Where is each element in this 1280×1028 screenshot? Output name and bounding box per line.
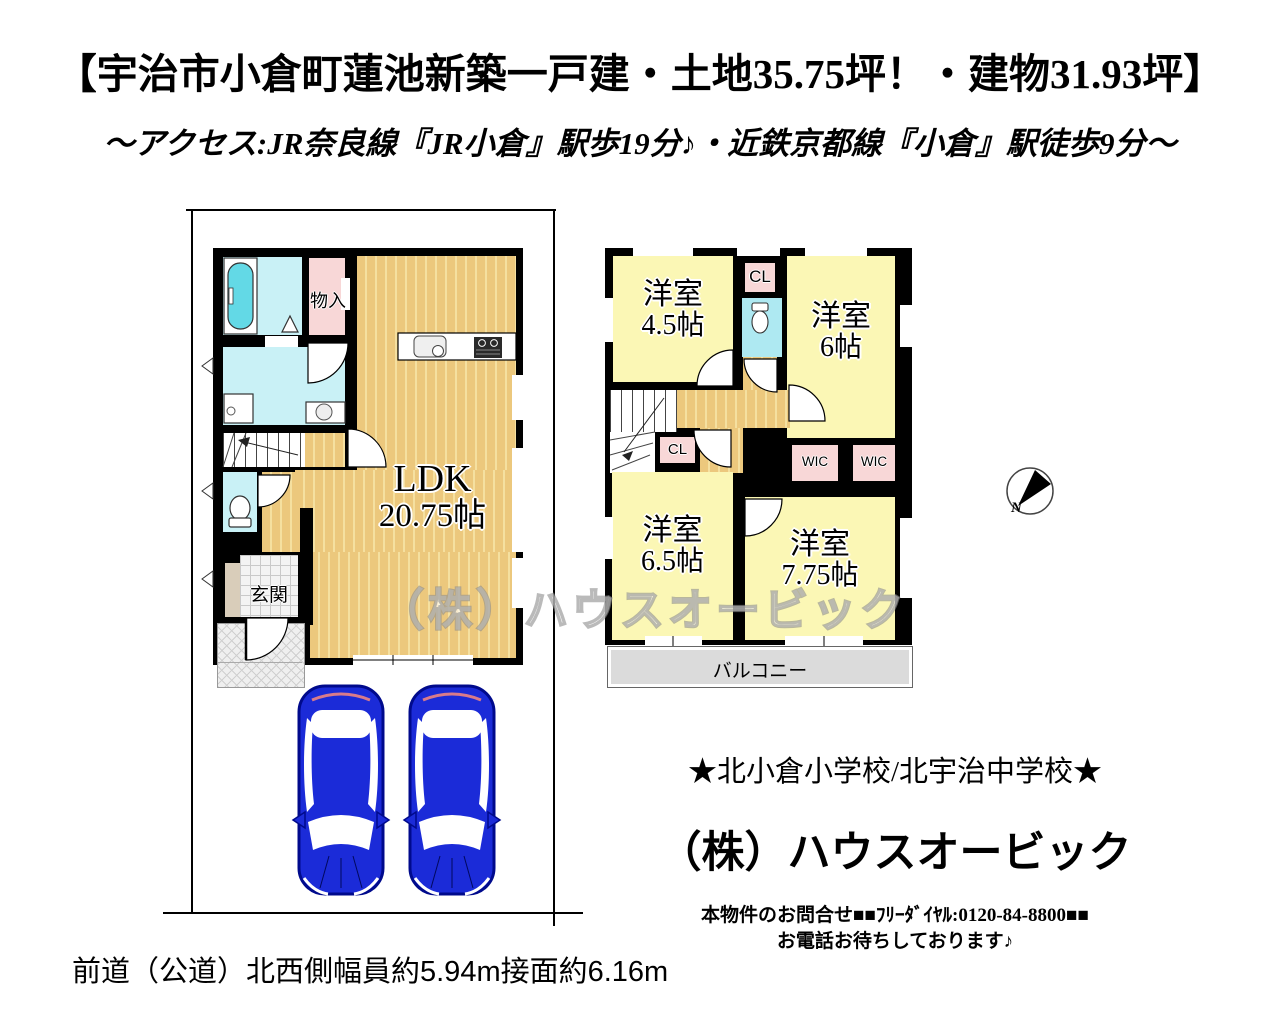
hall-2f-b bbox=[743, 357, 777, 390]
compass-north-label: N bbox=[1010, 500, 1023, 516]
ldk-size: 20.75帖 bbox=[330, 500, 535, 533]
wic-left-label: WIC bbox=[792, 454, 838, 469]
closet-top-label: CL bbox=[745, 267, 775, 287]
window-kitchen-east bbox=[512, 375, 523, 420]
window-2f-north2 bbox=[737, 248, 780, 256]
ldk-label: LDK 20.75帖 bbox=[330, 460, 535, 533]
bedroom-6-5-label: 洋室 6.5帖 bbox=[612, 514, 733, 578]
bedroom-6-5-name: 洋室 bbox=[612, 514, 733, 547]
bedroom-4-5-name: 洋室 bbox=[613, 278, 733, 311]
road-info: 前道（公道）北西側幅員約5.94m接面約6.16m bbox=[72, 948, 668, 990]
toilet-room-2f bbox=[742, 298, 782, 357]
bedroom-4-5-label: 洋室 4.5帖 bbox=[613, 278, 733, 342]
porch-step-line bbox=[218, 662, 302, 663]
bedroom-4-5-size: 4.5帖 bbox=[613, 311, 733, 342]
access-info: ～アクセス:JR奈良線『JR小倉』駅歩19分♪・近鉄京都線『小倉』駅徒歩9分～ bbox=[0, 118, 1280, 163]
bedroom-6-size: 6帖 bbox=[787, 333, 895, 364]
ldk-floor-upper bbox=[357, 256, 516, 470]
wic-right-label: WIC bbox=[853, 454, 895, 469]
watermark: （株）ハウスオービック bbox=[380, 574, 900, 638]
hall-2f-c bbox=[700, 428, 743, 473]
window-2f-north1 bbox=[633, 248, 693, 256]
compass-icon: N bbox=[1007, 468, 1053, 516]
bedroom-7-75-name: 洋室 bbox=[745, 528, 895, 561]
bedroom-6-name: 洋室 bbox=[787, 300, 895, 333]
balcony-label: バルコニー bbox=[608, 656, 912, 683]
hall-2f-a bbox=[677, 390, 790, 428]
stairs-2f bbox=[610, 390, 677, 432]
storage-label: 物入 bbox=[299, 287, 357, 313]
entrance-label: 玄関 bbox=[239, 580, 299, 607]
car-icon-left bbox=[293, 686, 389, 894]
flyer-page: 【宇治市小倉町蓮池新築一戸建・土地35.75坪！・建物31.93坪】 ～アクセス… bbox=[0, 0, 1280, 1028]
car-icon-right bbox=[404, 686, 500, 894]
window-2f-west1 bbox=[605, 298, 613, 342]
stairs-1f bbox=[223, 433, 305, 467]
window-2f-north3 bbox=[805, 248, 867, 256]
ldk-name: LDK bbox=[330, 460, 535, 498]
contact-message-line: お電話お待ちしております♪ bbox=[650, 926, 1140, 953]
wall-entrance-side bbox=[300, 508, 313, 625]
washroom bbox=[223, 347, 345, 425]
stairs-2f-winder bbox=[610, 432, 655, 473]
contact-phone-line: 本物件のお問合せ■■ﾌﾘｰﾀﾞｲﾔﾙ:0120-84-8800■■ bbox=[650, 900, 1140, 927]
balcony: バルコニー bbox=[607, 646, 913, 688]
vent-markers bbox=[202, 358, 213, 587]
page-title: 【宇治市小倉町蓮池新築一戸建・土地35.75坪！・建物31.93坪】 bbox=[0, 40, 1280, 100]
window-2f-east1 bbox=[900, 305, 912, 347]
bedroom-6-label: 洋室 6帖 bbox=[787, 300, 895, 364]
entrance-porch bbox=[217, 623, 305, 688]
bath-door-gap bbox=[265, 336, 298, 347]
window-ldk-south bbox=[353, 655, 473, 665]
bathroom bbox=[223, 257, 302, 335]
school-districts: ★北小倉小学校/北宇治中学校★ bbox=[650, 748, 1140, 790]
closet-mid-label: CL bbox=[660, 441, 695, 458]
entrance-hall-step bbox=[225, 563, 240, 617]
hall-by-toilet bbox=[262, 472, 295, 552]
toilet-room-1f bbox=[223, 472, 257, 532]
company-name: （株）ハウスオービック bbox=[650, 818, 1140, 880]
